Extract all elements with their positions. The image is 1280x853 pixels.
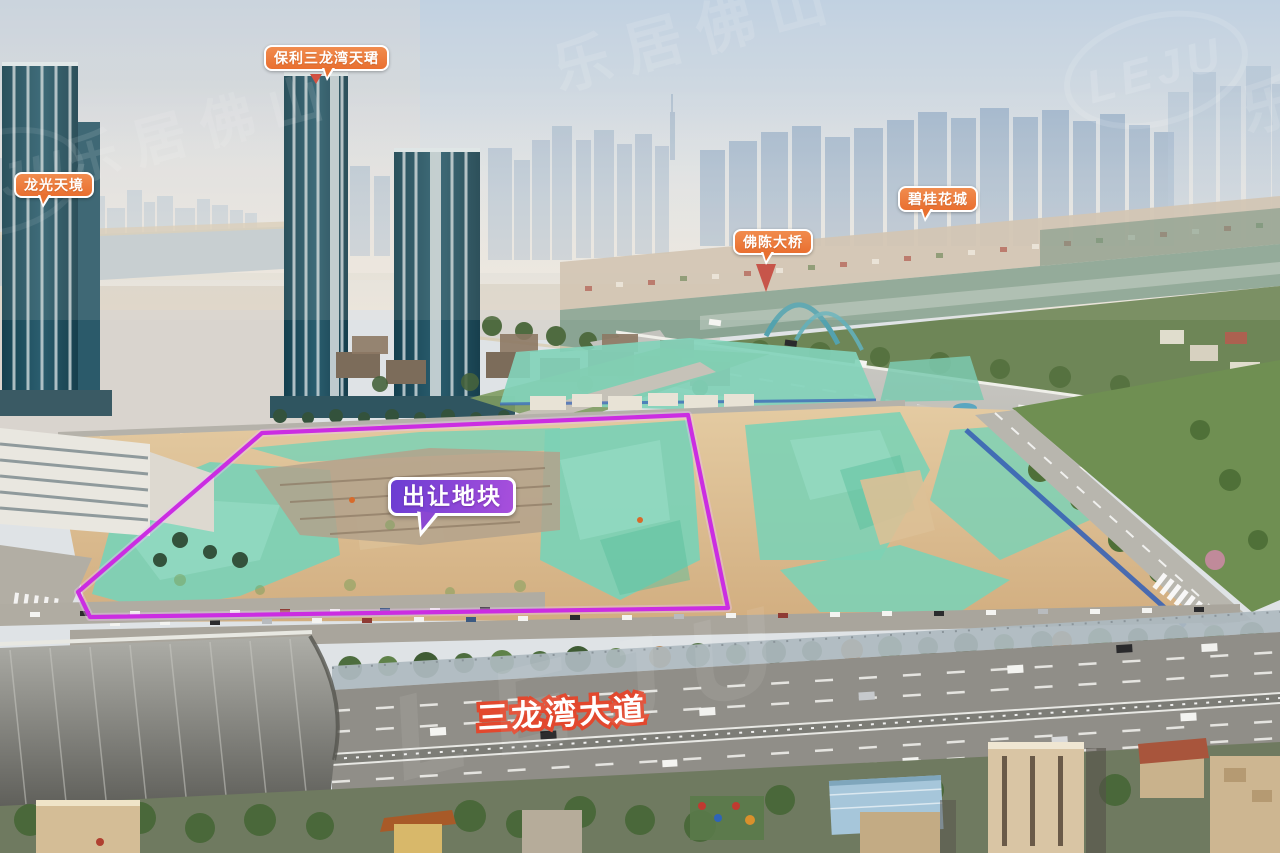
callout-parcel-text: 出让地块 [402,483,502,509]
callout-fochen-bridge: 佛陈大桥 [733,229,813,255]
callout-biguihuacheng: 碧桂花城 [898,186,978,212]
callout-poli-text: 保利三龙湾天珺 [274,50,379,66]
callout-longguang-text: 龙光天境 [24,177,84,193]
callout-pointer [418,511,436,532]
aerial-photo: 三龙湾大道 乐居佛山 乐居佛山 乐居佛山 LEJU LEJU LEJU 保利三龙… [0,0,1280,853]
callout-parcel: 出让地块 [388,477,516,516]
callout-poli-sanlongwan: 保利三龙湾天珺 [264,45,389,71]
callout-pointer [763,251,772,261]
callout-longguang: 龙光天境 [14,172,94,198]
scene-art: 三龙湾大道 [0,0,1280,853]
callout-pointer [324,67,333,77]
callout-pointer [922,208,931,218]
callout-biguihuacheng-text: 碧桂花城 [908,191,968,207]
haze-overlay [0,0,1280,320]
callout-fochen-text: 佛陈大桥 [743,234,803,250]
callout-pointer [40,194,49,204]
